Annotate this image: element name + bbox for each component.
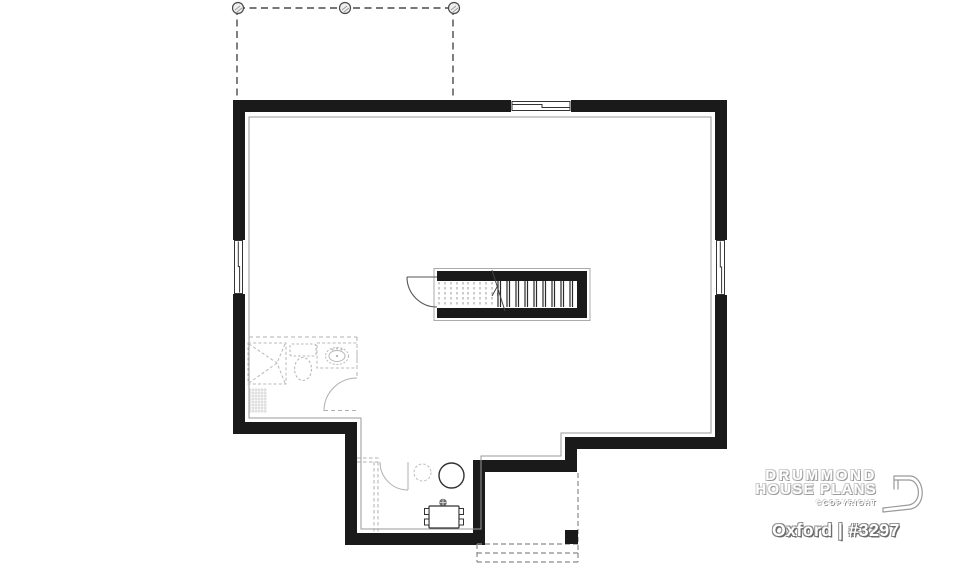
- water-softener-icon: [414, 464, 431, 481]
- stairwell: [407, 269, 590, 321]
- mech-door-icon: [380, 462, 408, 490]
- brand-block: DRUMMOND HOUSE PLANS ©COPYRIGHT Oxford |…: [744, 463, 932, 541]
- deck-post-footing: [565, 530, 578, 544]
- furnace-icon: [425, 506, 464, 528]
- bathroom-door-icon: [324, 378, 357, 411]
- deck-above-outline: [237, 8, 453, 100]
- linen-hatch-area: [248, 388, 267, 413]
- mech-partition: [357, 458, 380, 533]
- future-bathroom: [248, 337, 357, 413]
- vanity-sink-icon: [317, 343, 357, 368]
- copyright-label: ©COPYRIGHT: [755, 499, 877, 508]
- stair-door-icon: [407, 277, 437, 307]
- brand-name-line2: HOUSE PLANS: [755, 483, 877, 497]
- toilet-icon: [290, 344, 316, 381]
- floor-plan-canvas: DRUMMOND HOUSE PLANS ©COPYRIGHT Oxford |…: [0, 0, 960, 569]
- exterior-steps: [477, 473, 578, 562]
- mechanical-room: [357, 458, 464, 533]
- drummond-logo-icon: [882, 465, 932, 515]
- brand-text: DRUMMOND HOUSE PLANS ©COPYRIGHT: [755, 463, 877, 508]
- shower-icon: [248, 343, 286, 384]
- floor-drain-icon: [439, 499, 447, 507]
- plan-number-label: Oxford | #3297: [744, 520, 932, 541]
- window-top-icon: [512, 102, 570, 111]
- window-right-icon: [717, 241, 725, 295]
- water-heater-icon: [439, 463, 464, 488]
- window-left-icon: [235, 241, 243, 294]
